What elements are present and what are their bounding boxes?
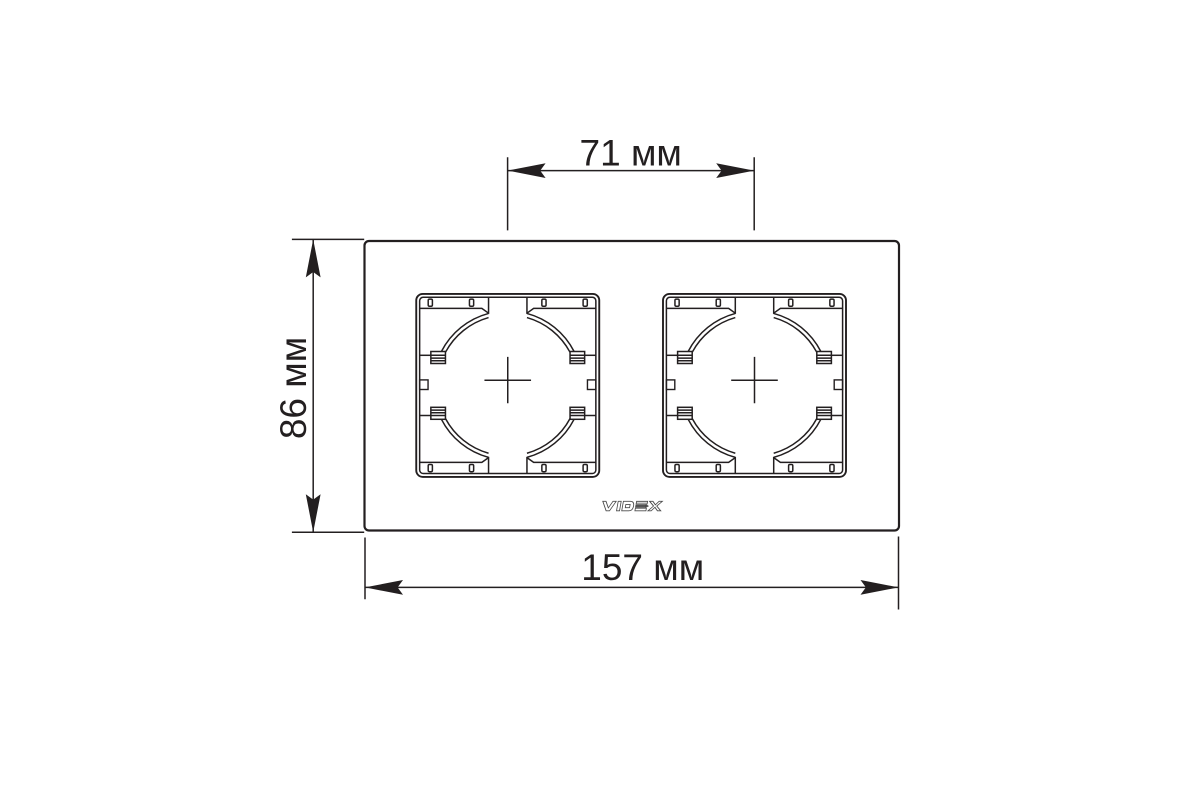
svg-text:157 мм: 157 мм bbox=[581, 547, 704, 588]
svg-text:86 мм: 86 мм bbox=[273, 337, 314, 439]
svg-text:71 мм: 71 мм bbox=[580, 132, 682, 173]
